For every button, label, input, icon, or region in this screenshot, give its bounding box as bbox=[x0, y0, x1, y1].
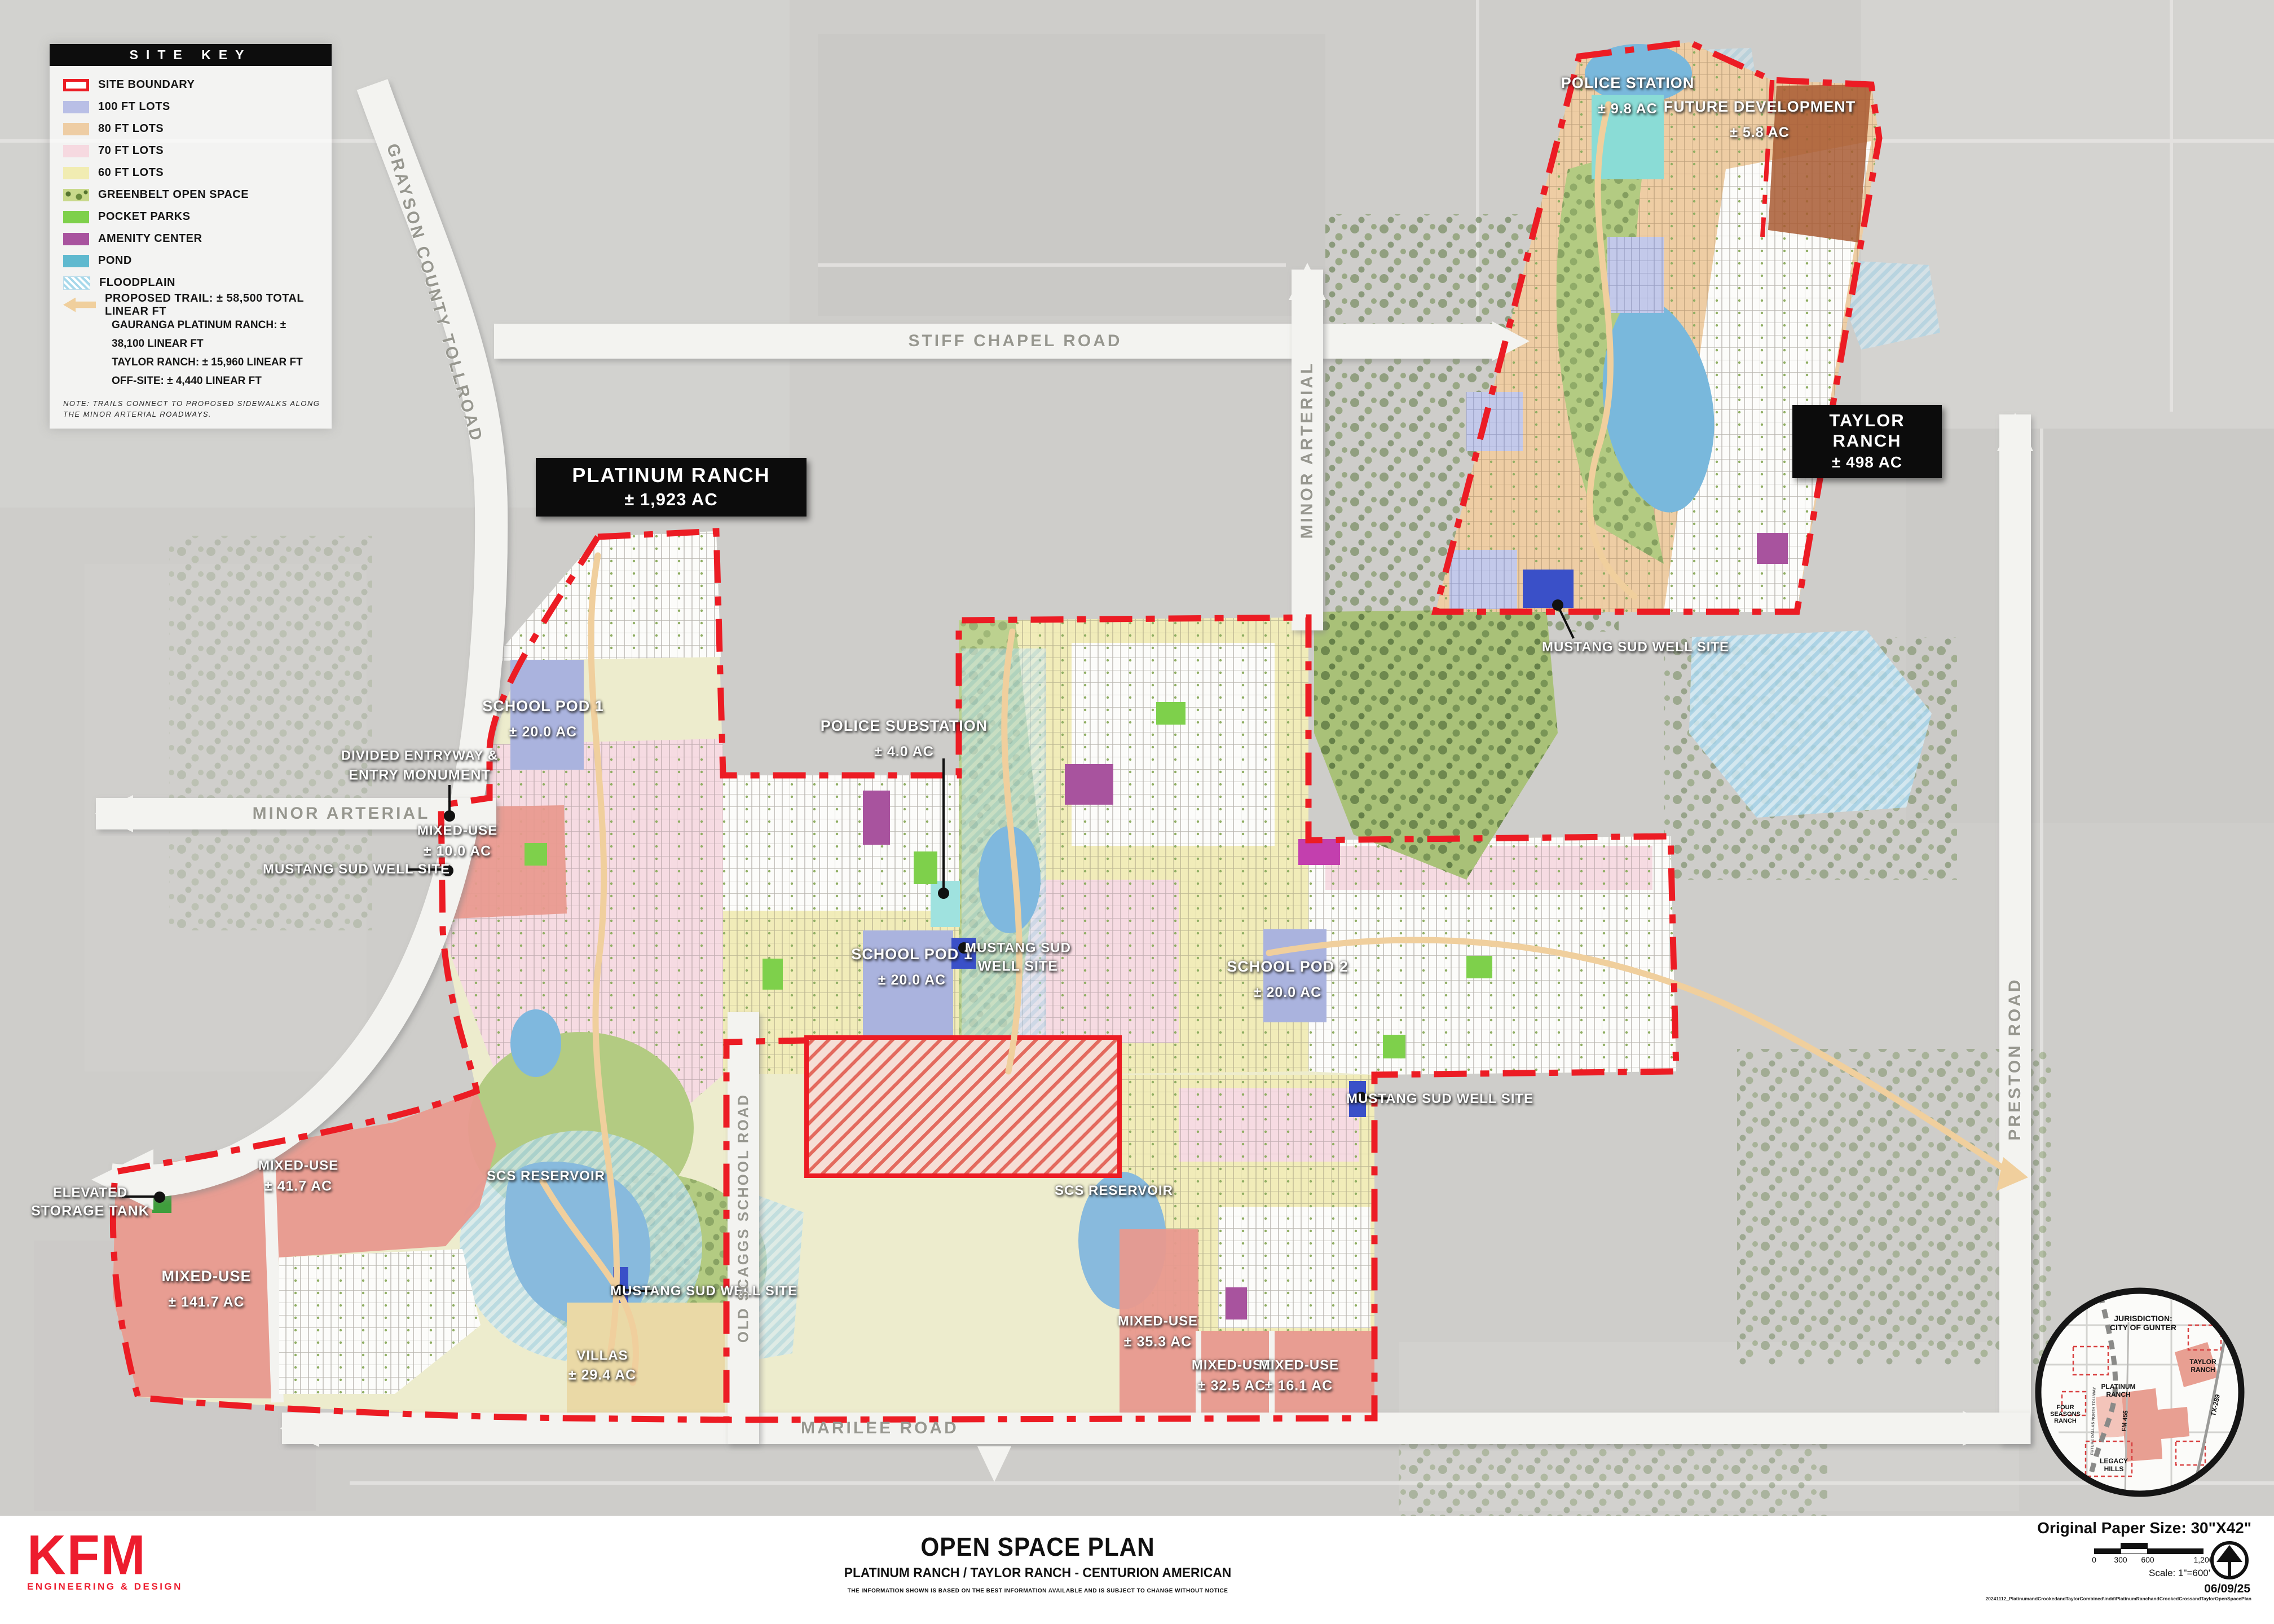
greenbelt-swatch bbox=[63, 189, 89, 201]
inset-jurisdiction: JURISDICTION:CITY OF GUNTER bbox=[2110, 1314, 2176, 1332]
kfm-logo-text: KFM bbox=[27, 1532, 183, 1579]
legend-item-100ft: 100 FT LOTS bbox=[63, 96, 321, 118]
legend-item-floodplain: FLOODPLAIN bbox=[63, 272, 321, 294]
legend-item-80ft: 80 FT LOTS bbox=[63, 118, 321, 140]
trail-arrow-icon bbox=[63, 298, 96, 312]
label-mixed-use-41: MIXED-USE± 41.7 AC bbox=[258, 1158, 338, 1195]
legend-item-trail: PROPOSED TRAIL: ± 58,500 TOTAL LINEAR FT bbox=[63, 294, 321, 316]
label-villas: VILLAS± 29.4 AC bbox=[568, 1348, 636, 1384]
trail-detail-gauranga: GAURANGA PLATINUM RANCH: ± 38,100 LINEAR… bbox=[63, 316, 321, 353]
inset-platinum: PLATINUM RANCH bbox=[2094, 1383, 2143, 1398]
taylor-ranch-box: TAYLOR RANCH ± 498 AC bbox=[1792, 405, 1942, 478]
lots-100-swatch bbox=[63, 101, 89, 113]
label-mixed-use-35: MIXED-USE± 35.3 AC bbox=[1118, 1314, 1198, 1351]
label-mustang-south: MUSTANG SUD WELL SITE bbox=[610, 1283, 797, 1299]
platinum-ranch-box: PLATINUM RANCH ± 1,923 AC bbox=[536, 458, 807, 517]
label-school-pod1-center: SCHOOL POD 1± 20.0 AC bbox=[851, 946, 973, 988]
label-mustang-east: MUSTANG SUD WELL SITE bbox=[1346, 1091, 1533, 1107]
label-scs-east: SCS RESERVOIR bbox=[1055, 1183, 1173, 1199]
road-marilee: MARILEE ROAD bbox=[801, 1419, 959, 1438]
police-substation-site bbox=[931, 881, 960, 927]
lots-70-swatch bbox=[63, 145, 89, 157]
site-boundary-swatch bbox=[63, 79, 89, 91]
label-mustang-west: MUSTANG SUD WELL SITE bbox=[263, 862, 450, 877]
road-minor-arterial-h: MINOR ARTERIAL bbox=[253, 804, 430, 823]
label-elevated-tank: ELEVATEDSTORAGE TANK bbox=[31, 1185, 149, 1220]
label-school-pod2: SCHOOL POD 2± 20.0 AC bbox=[1227, 958, 1348, 1001]
preston-band bbox=[1999, 414, 2031, 1444]
hatched-parcel bbox=[807, 1038, 1120, 1176]
amenity-swatch bbox=[63, 233, 89, 245]
file-path: 20241112_PlatinumandCrookedandTaylorComb… bbox=[1985, 1596, 2251, 1601]
inset-taylor: TAYLOR RANCH bbox=[2180, 1358, 2225, 1374]
legend-item-pocket-parks: POCKET PARKS bbox=[63, 206, 321, 228]
plan-date: 06/09/25 bbox=[2204, 1582, 2250, 1596]
trail-detail-offsite: OFF-SITE: ± 4,440 LINEAR FT bbox=[63, 372, 321, 390]
label-mixed-use-16: MIXED-USE± 16.1 AC bbox=[1259, 1358, 1339, 1394]
label-divided-entry: DIVIDED ENTRYWAY &ENTRY MONUMENT bbox=[341, 748, 499, 784]
lots-60-swatch bbox=[63, 167, 89, 179]
scale-bar bbox=[2094, 1543, 2204, 1554]
label-school-pod1-north: SCHOOL POD 1± 20.0 AC bbox=[482, 698, 604, 740]
road-old-scaggs: OLD SCAGGS SCHOOL ROAD bbox=[735, 1093, 752, 1343]
trail-detail-taylor: TAYLOR RANCH: ± 15,960 LINEAR FT bbox=[63, 353, 321, 372]
site-key-legend: SITE KEY SITE BOUNDARY 100 FT LOTS 80 FT… bbox=[50, 44, 332, 429]
pond-swatch bbox=[63, 255, 89, 267]
plan-disclaimer: THE INFORMATION SHOWN IS BASED ON THE BE… bbox=[834, 1588, 1242, 1594]
legend-item-60ft: 60 FT LOTS bbox=[63, 162, 321, 184]
plan-title: OPEN SPACE PLAN bbox=[850, 1532, 1226, 1562]
label-mustang-center: MUSTANG SUDWELL SITE bbox=[965, 941, 1071, 975]
scale-ticks: 0 300 600 1,200 bbox=[2088, 1555, 2213, 1564]
label-mixed-use-141: MIXED-USE± 141.7 AC bbox=[161, 1268, 251, 1310]
pocket-parks-swatch bbox=[63, 211, 89, 223]
label-police-substation: POLICE SUBSTATION± 4.0 AC bbox=[821, 717, 988, 760]
road-minor-arterial-v: MINOR ARTERIAL bbox=[1298, 361, 1317, 539]
legend-item-amenity: AMENITY CENTER bbox=[63, 228, 321, 250]
legend-note: NOTE: TRAILS CONNECT TO PROPOSED SIDEWAL… bbox=[63, 398, 321, 420]
label-mustang-taylor: MUSTANG SUD WELL SITE bbox=[1542, 639, 1729, 655]
title-block: KFM ENGINEERING & DESIGN OPEN SPACE PLAN… bbox=[0, 1516, 2274, 1624]
floodplain-swatch bbox=[63, 276, 90, 290]
label-future-development: FUTURE DEVELOPMENT± 5.8 AC bbox=[1664, 98, 1856, 141]
lots-80-swatch bbox=[63, 123, 89, 135]
road-preston: PRESTON ROAD bbox=[2006, 977, 2025, 1140]
plan-subtitle: PLATINUM RANCH / TAYLOR RANCH - CENTURIO… bbox=[844, 1565, 1232, 1581]
legend-item-pond: POND bbox=[63, 250, 321, 272]
label-mixed-use-10: MIXED-USE± 10.0 AC bbox=[417, 823, 497, 860]
inset-four-seasons: FOUR SEASONS RANCH bbox=[2047, 1404, 2084, 1424]
legend-item-site-boundary: SITE BOUNDARY bbox=[63, 74, 321, 96]
legend-title: SITE KEY bbox=[50, 44, 332, 66]
road-stiff-chapel: STIFF CHAPEL ROAD bbox=[908, 332, 1122, 351]
label-scs-west: SCS RESERVOIR bbox=[487, 1168, 605, 1184]
plan-sheet: SITE KEY SITE BOUNDARY 100 FT LOTS 80 FT… bbox=[0, 0, 2274, 1624]
kfm-logo: KFM ENGINEERING & DESIGN bbox=[27, 1533, 183, 1592]
plan-title-block: OPEN SPACE PLAN PLATINUM RANCH / TAYLOR … bbox=[834, 1532, 1242, 1594]
legend-item-70ft: 70 FT LOTS bbox=[63, 140, 321, 162]
legend-item-greenbelt: GREENBELT OPEN SPACE bbox=[63, 184, 321, 206]
inset-legacy-hills: LEGACY HILLS bbox=[2094, 1457, 2134, 1473]
north-arrow-icon bbox=[2210, 1541, 2249, 1580]
paper-size: Original Paper Size: 30"X42" bbox=[2037, 1519, 2251, 1537]
